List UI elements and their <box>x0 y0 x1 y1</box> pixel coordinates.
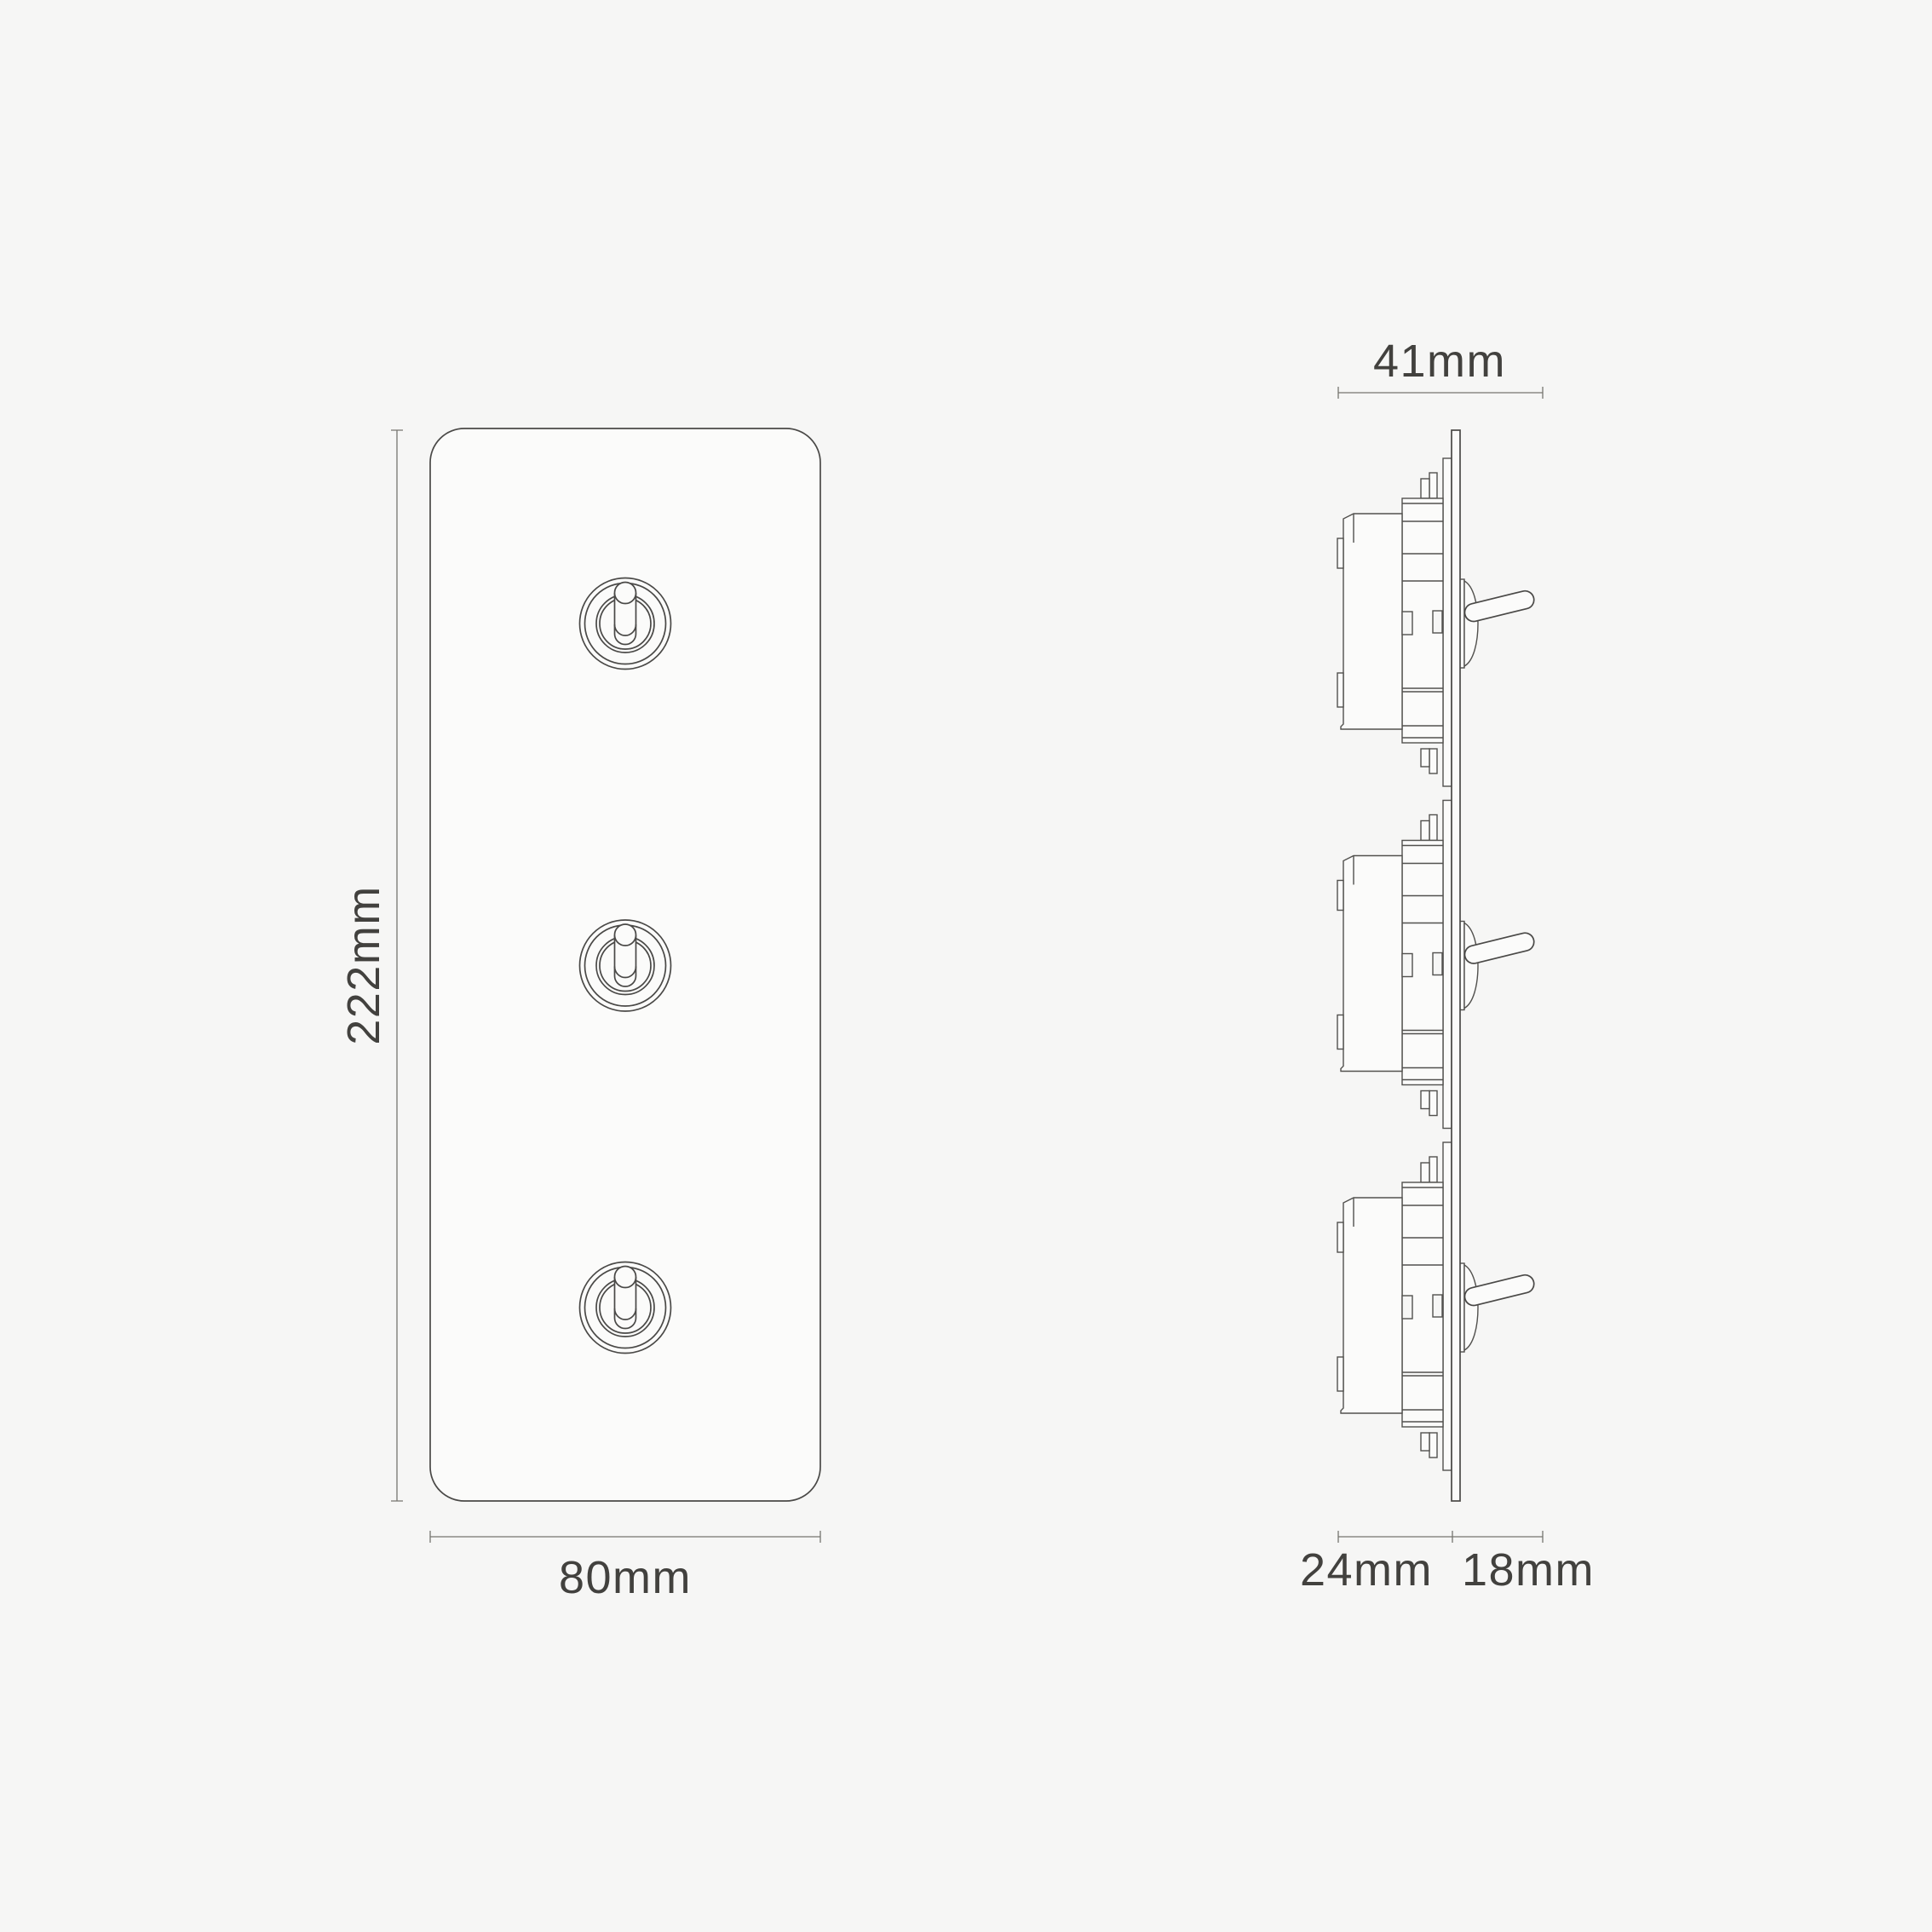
switch-dimension-diagram: 222mm 80mm 41mm 24mm 18mm <box>0 0 1932 1932</box>
side-view <box>1337 430 1536 1501</box>
height-dimension-label: 222mm <box>341 885 387 1045</box>
side-module-2 <box>1337 801 1536 1129</box>
toggle-projection-dimension-label: 18mm <box>1462 1547 1595 1593</box>
front-view <box>430 428 820 1501</box>
width-dimension-label: 80mm <box>559 1555 692 1601</box>
side-plate-edge <box>1452 430 1460 1501</box>
side-module-1 <box>1337 458 1536 786</box>
total-depth-dimension-label: 41mm <box>1373 338 1506 384</box>
side-module-3 <box>1337 1142 1536 1470</box>
width-dimension-line <box>430 1531 820 1543</box>
mechanism-depth-dimension-label: 24mm <box>1300 1547 1433 1593</box>
split-depth-dimension-line <box>1338 1531 1543 1543</box>
line-art <box>0 0 1932 1932</box>
height-dimension-line <box>391 430 403 1501</box>
total-depth-dimension-line <box>1338 387 1543 399</box>
